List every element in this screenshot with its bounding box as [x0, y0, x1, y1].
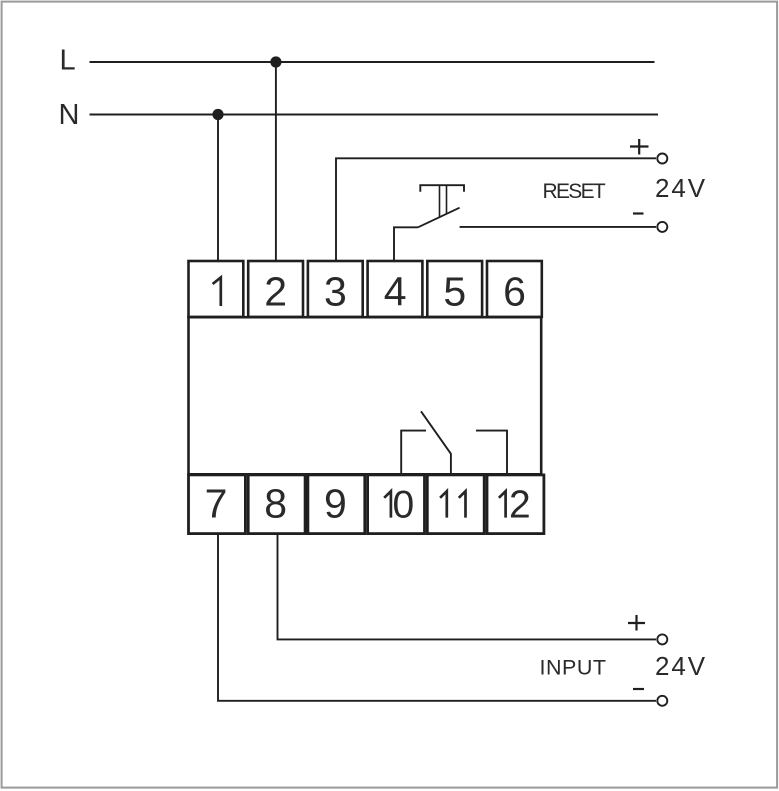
- svg-text:0: 0: [393, 484, 415, 527]
- svg-text:2: 2: [509, 484, 531, 527]
- svg-text:2: 2: [264, 269, 287, 315]
- svg-text:24V: 24V: [655, 651, 707, 681]
- svg-text:INPUT: INPUT: [540, 656, 607, 680]
- svg-text:L: L: [60, 45, 76, 77]
- svg-text:RESET: RESET: [543, 180, 606, 203]
- svg-text:24V: 24V: [655, 173, 707, 203]
- svg-text:7: 7: [205, 481, 228, 527]
- svg-text:8: 8: [264, 481, 287, 527]
- svg-text:3: 3: [324, 269, 347, 315]
- svg-text:9: 9: [324, 481, 347, 527]
- svg-text:4: 4: [384, 269, 407, 315]
- svg-text:5: 5: [443, 269, 466, 315]
- svg-text:6: 6: [503, 269, 526, 315]
- svg-text:N: N: [59, 99, 80, 131]
